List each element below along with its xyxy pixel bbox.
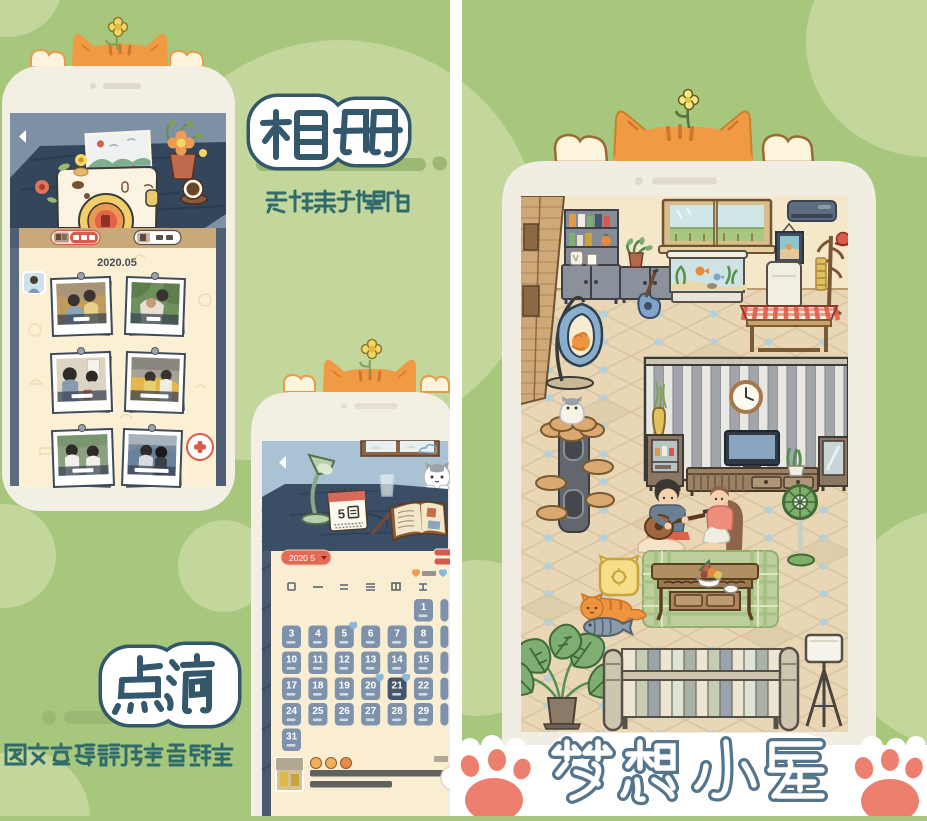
svg-text:15: 15 [418, 655, 430, 666]
svg-text:28: 28 [392, 706, 404, 717]
svg-text:2020 5: 2020 5 [289, 553, 315, 563]
svg-text:5: 5 [337, 506, 345, 521]
svg-text:20: 20 [365, 681, 377, 692]
svg-text:25: 25 [312, 706, 324, 717]
svg-text:21: 21 [392, 681, 404, 692]
svg-text:31: 31 [286, 732, 298, 743]
svg-text:14: 14 [392, 655, 404, 666]
svg-text:11: 11 [313, 655, 324, 666]
svg-text:17: 17 [286, 681, 298, 692]
svg-text:1: 1 [421, 602, 427, 613]
svg-text:24: 24 [286, 706, 298, 717]
svg-text:26: 26 [339, 706, 351, 717]
svg-text:18: 18 [312, 681, 324, 692]
svg-text:27: 27 [365, 706, 377, 717]
svg-text:29: 29 [418, 706, 430, 717]
svg-text:12: 12 [339, 655, 351, 666]
svg-text:8: 8 [421, 629, 427, 640]
svg-text:5: 5 [342, 629, 348, 640]
svg-text:7: 7 [394, 629, 400, 640]
svg-text:6: 6 [368, 629, 374, 640]
svg-text:3: 3 [289, 629, 295, 640]
svg-text:13: 13 [365, 655, 377, 666]
svg-text:10: 10 [286, 655, 298, 666]
svg-text:22: 22 [418, 681, 430, 692]
svg-text:2020.05: 2020.05 [97, 257, 137, 269]
svg-text:19: 19 [339, 681, 351, 692]
svg-text:4: 4 [315, 629, 321, 640]
